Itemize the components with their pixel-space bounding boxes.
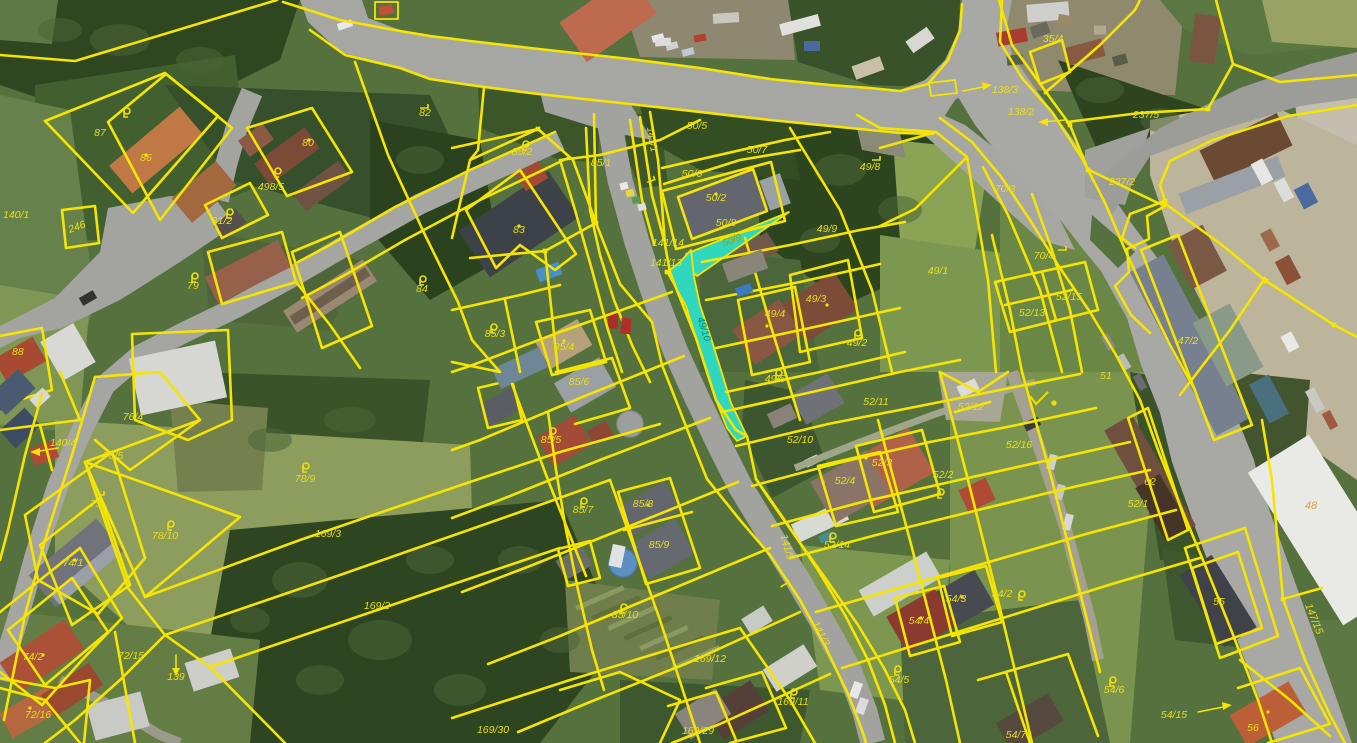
svg-text:51: 51: [1100, 370, 1112, 382]
svg-text:138/2: 138/2: [1008, 106, 1034, 118]
svg-text:70/3: 70/3: [995, 183, 1016, 195]
svg-text:49/9: 49/9: [817, 223, 838, 235]
svg-text:85/5: 85/5: [541, 434, 562, 446]
svg-text:76/5: 76/5: [103, 450, 124, 462]
svg-text:52/3: 52/3: [872, 457, 893, 469]
svg-text:140/4: 140/4: [50, 437, 76, 449]
svg-text:85/10: 85/10: [612, 609, 638, 621]
svg-text:49/2: 49/2: [847, 337, 868, 349]
svg-text:70/4: 70/4: [1034, 250, 1055, 262]
svg-text:169/2: 169/2: [364, 600, 390, 612]
svg-text:82: 82: [419, 107, 431, 119]
svg-text:79: 79: [187, 280, 199, 292]
svg-text:54/15: 54/15: [1161, 709, 1187, 721]
svg-text:139: 139: [167, 671, 185, 683]
svg-text:54/3: 54/3: [946, 593, 967, 605]
svg-text:140/1: 140/1: [3, 209, 29, 221]
svg-text:85/4: 85/4: [554, 341, 575, 353]
svg-text:52/12: 52/12: [958, 401, 984, 413]
svg-text:47/2: 47/2: [1178, 335, 1199, 347]
svg-text:72/16: 72/16: [25, 709, 51, 721]
svg-text:49/3: 49/3: [806, 293, 827, 305]
svg-text:35/4: 35/4: [1043, 33, 1064, 45]
svg-text:138/3: 138/3: [992, 84, 1018, 96]
svg-text:52/14: 52/14: [824, 539, 850, 551]
svg-text:169/30: 169/30: [477, 724, 509, 736]
svg-text:169/12: 169/12: [694, 653, 726, 665]
svg-text:85/7: 85/7: [573, 504, 595, 516]
svg-text:50/7: 50/7: [747, 144, 769, 156]
svg-text:237/2: 237/2: [1108, 176, 1135, 188]
svg-text:54/7: 54/7: [1006, 729, 1028, 741]
svg-text:88: 88: [12, 346, 24, 358]
svg-text:169/11: 169/11: [777, 696, 808, 708]
svg-text:49/5: 49/5: [765, 373, 786, 385]
svg-text:49/4: 49/4: [765, 308, 786, 320]
svg-text:52/1: 52/1: [1128, 498, 1148, 510]
svg-text:85/3: 85/3: [485, 328, 506, 340]
svg-text:78/9: 78/9: [295, 473, 316, 485]
svg-text:85/1: 85/1: [591, 157, 611, 169]
svg-text:75: 75: [90, 498, 102, 510]
svg-text:56: 56: [1247, 722, 1259, 734]
svg-text:141/14: 141/14: [652, 237, 684, 249]
svg-text:54/2: 54/2: [992, 588, 1013, 600]
svg-text:52/10: 52/10: [787, 434, 813, 446]
svg-text:87: 87: [94, 127, 107, 139]
svg-text:52/13: 52/13: [1019, 307, 1045, 319]
svg-text:52/15: 52/15: [1056, 291, 1082, 303]
svg-text:52/11: 52/11: [863, 396, 889, 408]
svg-text:141/13: 141/13: [650, 257, 682, 269]
svg-text:81/2: 81/2: [212, 215, 233, 227]
svg-text:50/8: 50/8: [716, 217, 737, 229]
svg-text:84: 84: [416, 283, 428, 295]
svg-text:49/8: 49/8: [860, 161, 881, 173]
svg-text:85/2: 85/2: [512, 146, 533, 158]
svg-text:72/15: 72/15: [118, 650, 144, 662]
svg-text:50/5: 50/5: [687, 120, 708, 132]
svg-text:50/6: 50/6: [682, 168, 703, 180]
svg-text:237/5: 237/5: [1132, 109, 1159, 121]
svg-text:54/4: 54/4: [909, 615, 930, 627]
svg-text:74/1: 74/1: [63, 557, 83, 569]
svg-text:52/16: 52/16: [1006, 439, 1032, 451]
svg-text:169/3: 169/3: [315, 528, 341, 540]
svg-text:78/10: 78/10: [152, 530, 178, 542]
svg-text:85/9: 85/9: [649, 539, 670, 551]
svg-text:76/4: 76/4: [123, 411, 144, 423]
svg-text:85/8: 85/8: [633, 498, 654, 510]
svg-text:54/6: 54/6: [1104, 684, 1125, 696]
svg-text:85/6: 85/6: [569, 376, 590, 388]
svg-text:54/5: 54/5: [889, 674, 910, 686]
svg-text:169/29: 169/29: [682, 725, 714, 737]
svg-text:74/2: 74/2: [23, 651, 44, 663]
svg-text:498/5: 498/5: [258, 181, 284, 193]
svg-text:49/1: 49/1: [928, 265, 948, 277]
svg-text:48: 48: [1305, 500, 1318, 512]
svg-text:52/4: 52/4: [835, 475, 856, 487]
svg-text:52/2: 52/2: [933, 469, 954, 481]
